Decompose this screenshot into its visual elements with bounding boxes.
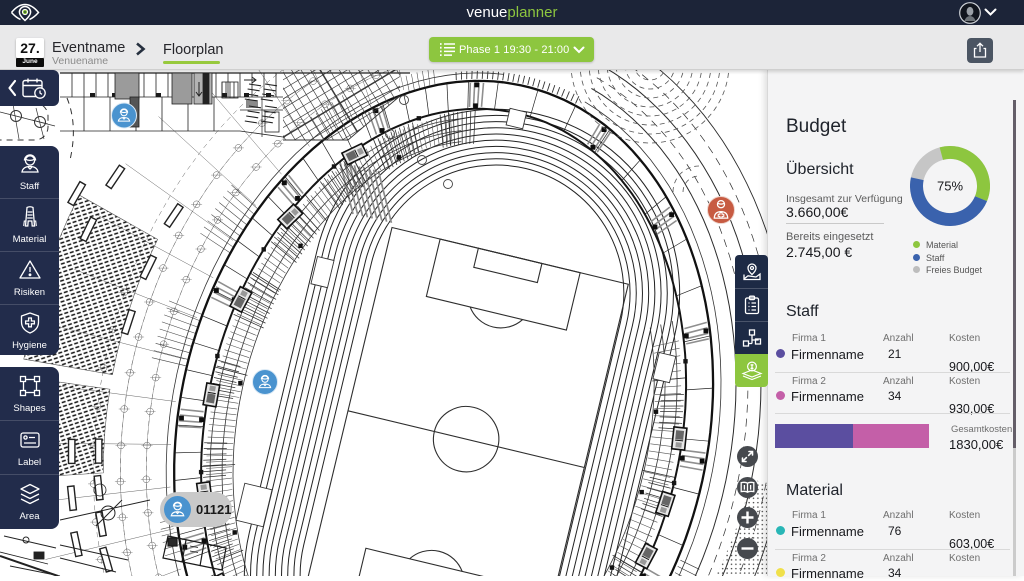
svg-text:01121: 01121 — [196, 502, 231, 517]
